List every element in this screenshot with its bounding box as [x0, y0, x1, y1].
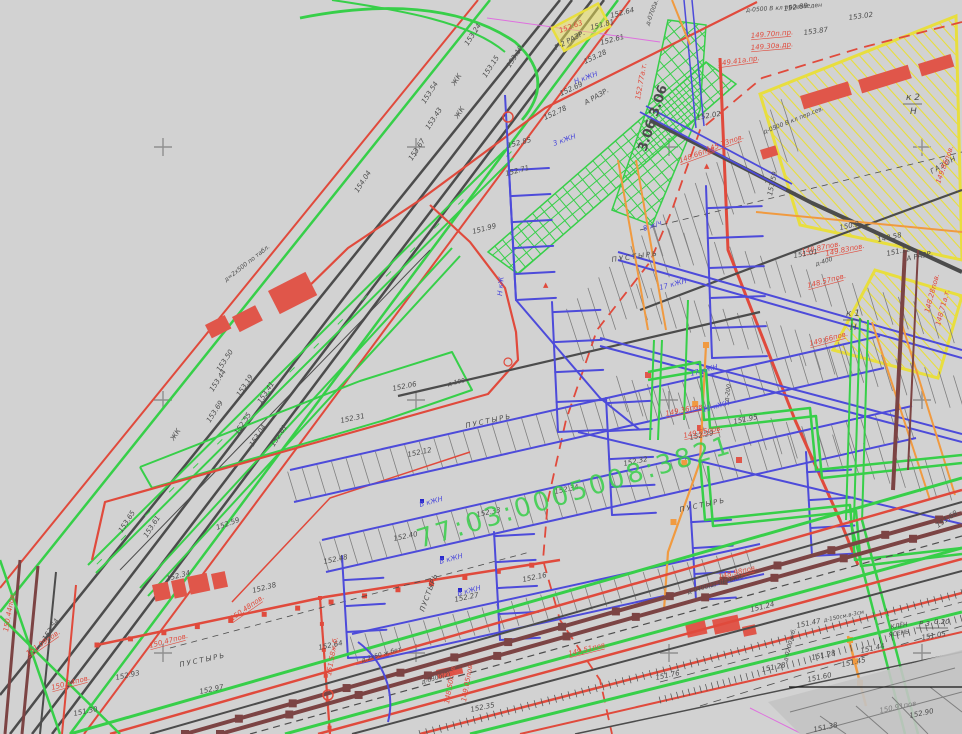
map-label-text: д-100: [446, 377, 466, 388]
map-label: ЖК: [168, 426, 183, 443]
map-label: 150.48пов.: [229, 593, 266, 622]
map-label: 153.61: [142, 514, 162, 539]
map-label: 152.12: [407, 446, 433, 459]
map-label: 8 ж/ч: [642, 219, 663, 233]
map-label: ▲: [704, 162, 710, 170]
map-label: 150.47пов.: [148, 632, 188, 650]
map-label: 153.67: [407, 137, 427, 162]
map-label: А РАЗР.: [582, 86, 610, 107]
map-label: Н: [850, 323, 857, 333]
map-label-text: 153.43: [424, 106, 444, 131]
map-label: 0.20: [934, 618, 950, 626]
map-label-text: д-0700а.Б.: [644, 0, 662, 28]
building-block: [736, 457, 742, 463]
map-label: 153.87: [803, 26, 829, 37]
map-label-text: д-0200ж.б.: [782, 627, 798, 663]
map-line: [862, 320, 868, 522]
map-line: [658, 340, 662, 440]
map-label-text: ЖК: [449, 71, 464, 88]
map-label-text: д-150см.в-3см: [822, 610, 864, 625]
map-label-text: 154.04: [353, 169, 373, 194]
map-label: 151.30: [73, 705, 99, 718]
map-line: [0, 0, 478, 588]
map-label: 17 кЖН: [658, 277, 688, 292]
map-label: 151.47: [796, 617, 822, 630]
map-label: д-150см.в-3см: [822, 610, 864, 625]
map-label-text: 151.28: [811, 649, 837, 662]
map-label: 152.35: [470, 701, 496, 714]
map-label: 154.04: [353, 169, 373, 194]
map-label: ▲: [543, 281, 549, 289]
building-block: [858, 65, 912, 94]
map-label: 153.50: [215, 348, 235, 373]
map-label: д-0700а.Б.: [644, 0, 662, 28]
map-label: к 2: [906, 93, 920, 103]
map-label: 148.57пов.: [806, 272, 846, 290]
map-label: 153.24: [463, 22, 483, 47]
map-label: 151.45: [841, 656, 867, 669]
map-label: ПУСТЫРЬ: [179, 651, 227, 669]
map-label-text: Н: [850, 323, 857, 333]
map-label-text: 153.50: [215, 348, 235, 373]
map-label: 151.99: [471, 222, 497, 236]
map-label: ПУСТЫРЬ: [418, 572, 439, 613]
map-label-text: 153.87: [803, 26, 829, 37]
building-block: [268, 272, 317, 314]
map-label-text: 152.31: [340, 412, 366, 425]
map-label: 151.05: [921, 630, 947, 642]
map-label-text: 3 кЖН: [552, 132, 578, 148]
map-label: 149.41а.пр.: [717, 54, 760, 68]
map-label: В кЖН: [418, 495, 444, 509]
map-label: 149.30а.др.: [750, 40, 793, 52]
map-label: 153.44: [208, 368, 228, 393]
map-label-text: д-200: [723, 383, 733, 403]
map-line: [600, 346, 962, 442]
grid-cross-icon: [913, 138, 931, 156]
map-line: [148, 256, 460, 596]
map-label-text: Р 3: [919, 620, 930, 628]
map-label: к 1: [846, 309, 860, 319]
survey-point: [504, 358, 512, 366]
map-line: [756, 212, 962, 232]
map-label-text: 151.05: [921, 630, 947, 642]
map-label-text: 151.99: [471, 222, 497, 236]
map-label: 152.31: [340, 412, 366, 425]
map-path: [300, 9, 538, 120]
hatched-area: [620, 0, 962, 379]
map-label: д-100: [446, 377, 466, 388]
map-label-text: 153.61: [142, 514, 162, 539]
map-label: 153.43: [424, 106, 444, 131]
map-label: 151.28: [811, 649, 837, 662]
map-label-text: 152.77а.т.: [634, 62, 648, 100]
map-label: 153.04: [248, 423, 268, 448]
map-label-text: 8 ж/ч: [642, 219, 663, 233]
map-label: 152.48: [323, 553, 349, 566]
building-block: [211, 571, 228, 590]
grid-cross-icon: [660, 391, 678, 409]
map-label-text: 150.48пов.: [229, 593, 266, 622]
map-label-text: 153.04: [248, 423, 268, 448]
map-label: 153.19: [235, 373, 255, 398]
map-label-text: 153.44: [208, 368, 228, 393]
map-label: ЖК: [449, 71, 464, 88]
map-label-text: 77:03:0005008:3821: [413, 430, 736, 555]
map-label: 152.16: [522, 571, 548, 584]
map-label-text: 153.67: [407, 137, 427, 162]
map-line: [618, 252, 962, 350]
map-line: [618, 260, 962, 358]
map-label-text: 153.02: [848, 11, 874, 22]
building-block: [645, 372, 651, 378]
map-label-text: В кЖН: [418, 495, 444, 509]
map-line: [32, 0, 592, 734]
map-label-text: 153.24: [463, 22, 483, 47]
map-label-text: ПУСТЫРЬ: [179, 651, 227, 669]
map-label: д-200: [723, 383, 733, 403]
map-label: д-0200ж.б.: [782, 627, 798, 663]
map-label-text: к 1: [846, 309, 860, 319]
map-label: ПУСТЫРЬ: [465, 412, 513, 430]
map-label-text: 152.12: [407, 446, 433, 459]
parking-comb: [342, 556, 388, 658]
map-label-text: 152.06: [392, 380, 418, 393]
map-label-text: ▲: [543, 281, 549, 289]
map-label-text: ЖК: [168, 426, 183, 443]
map-label-text: 153.28: [582, 48, 608, 66]
map-label-text: А РАЗР.: [582, 86, 610, 107]
map-label: 149.51пов.: [568, 641, 608, 658]
building-block: [232, 305, 263, 332]
map-label-text: 153.19: [235, 373, 255, 398]
map-label-text: 17 кЖН: [658, 277, 688, 292]
map-label-text: 152.38: [251, 581, 277, 595]
cadastral-number-label: 77:03:0005008:3821: [413, 430, 736, 555]
map-label-text: ▲: [704, 162, 710, 170]
building-block: [205, 315, 231, 338]
building-block: [760, 145, 778, 159]
map-label: Н: [910, 107, 917, 117]
cad-viewport[interactable]: 153.24153.19153.15ЖК153.54153.43ЖК154.04…: [0, 0, 962, 734]
map-label-text: 149.51пов.: [568, 641, 608, 658]
cad-map-canvas[interactable]: 153.24153.19153.15ЖК153.54153.43ЖК154.04…: [0, 0, 962, 734]
map-label-text: 149.41а.пр.: [717, 54, 760, 68]
map-label-text: 151.30: [73, 705, 99, 718]
grid-cross-icon: [154, 138, 172, 156]
map-line: [10, 0, 572, 734]
map-label-text: 152.16: [522, 571, 548, 584]
map-label-text: д-400: [814, 256, 834, 269]
map-line: [40, 572, 56, 734]
map-label: 152.06: [392, 380, 418, 393]
survey-point: [503, 112, 513, 122]
map-line: [5, 560, 20, 734]
map-label-text: 151.45: [841, 656, 867, 669]
map-label: 151.28: [761, 661, 787, 674]
map-label-text: 152.48: [323, 553, 349, 566]
map-label: д-400: [814, 256, 834, 269]
map-label: 152.77а.т.: [634, 62, 648, 100]
map-label: 3 кЖН: [552, 132, 578, 148]
map-label-text: В кЖН: [438, 552, 464, 566]
map-label: Р 3: [919, 620, 930, 628]
map-label-text: ПУСТЫРЬ: [418, 572, 439, 613]
map-label-text: 0.20: [934, 618, 950, 626]
map-label-text: Н кЖ: [496, 276, 506, 296]
map-label-text: 151.47: [796, 617, 822, 630]
map-label: В кЖН: [438, 552, 464, 566]
map-label-text: 151.28: [761, 661, 787, 674]
map-label: 152.38: [251, 581, 277, 595]
map-label-text: к 2: [906, 93, 920, 103]
map-label-text: 152.35: [470, 701, 496, 714]
map-label-text: Н: [910, 107, 917, 117]
map-line: [290, 336, 880, 470]
map-line: [0, 0, 490, 612]
map-label-text: ПУСТЫРЬ: [465, 412, 513, 430]
map-label: 149.70п.пр.: [750, 28, 793, 40]
map-label: Н кЖ: [496, 276, 506, 296]
map-label: 153.02: [848, 11, 874, 22]
map-label: 153.28: [582, 48, 608, 66]
